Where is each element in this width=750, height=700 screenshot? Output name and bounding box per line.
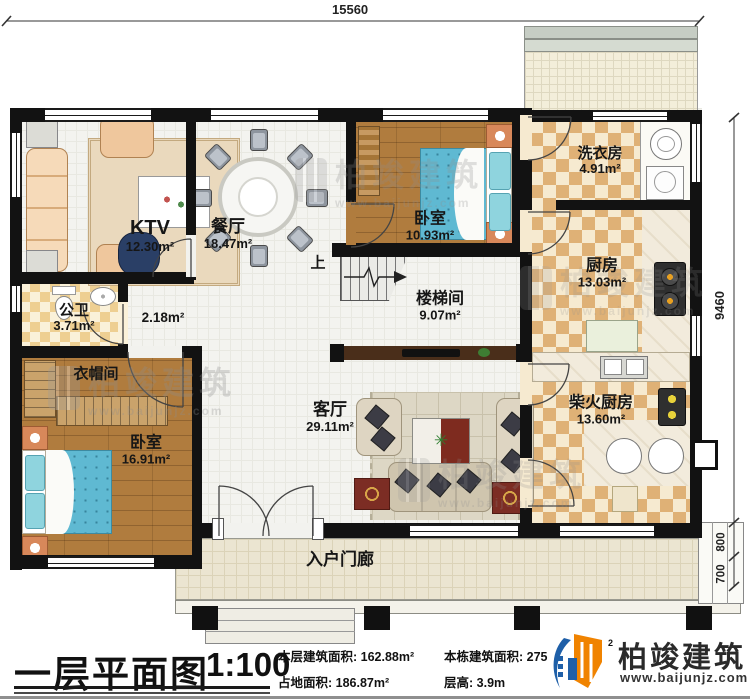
window xyxy=(45,108,151,122)
floor-mat xyxy=(354,478,390,510)
dining-table-top xyxy=(238,177,278,217)
floor-plan-sheet: ✳ xyxy=(0,0,750,700)
door-opening xyxy=(118,302,128,344)
dining-chair xyxy=(250,129,268,151)
room-label-bedroom-top: 卧室 10.93m² xyxy=(406,210,454,243)
title-block: 一层平面图 1:100 本层建筑面积: 162.88m² 占地面积: 186.8… xyxy=(0,628,750,700)
brand-logo-icon xyxy=(546,630,612,694)
firewood-stool xyxy=(612,486,638,512)
stairs-up-label: 上 xyxy=(310,254,325,271)
window xyxy=(10,133,22,197)
window xyxy=(10,286,22,312)
window xyxy=(593,110,667,122)
wall xyxy=(556,200,702,210)
kitchen-sink-basin xyxy=(626,359,644,375)
tv xyxy=(402,349,460,357)
door-opening xyxy=(520,362,532,405)
room-label-ktv: KTV 12.30m² xyxy=(126,217,174,255)
toilet-tank xyxy=(52,286,76,295)
firewood-pot xyxy=(648,438,684,474)
wall-stub xyxy=(330,344,344,362)
stat-total-area: 本栋建筑面积: 275 xyxy=(444,646,548,665)
dining-chair xyxy=(250,245,268,267)
wardrobe-side xyxy=(24,360,56,418)
door-opening xyxy=(216,523,316,538)
room-label-firewood-kitchen: 柴火厨房 13.60m² xyxy=(569,394,633,427)
door-opening xyxy=(128,346,182,358)
ktv-side-table xyxy=(26,118,58,148)
title-underline xyxy=(14,692,270,694)
plan-title: 一层平面图 xyxy=(14,644,209,698)
brand-site: www.baijunjz.com xyxy=(620,670,748,685)
bed-left-sheet xyxy=(46,450,74,534)
wardrobe xyxy=(56,396,168,426)
door-opening xyxy=(520,115,532,160)
nightstand xyxy=(486,124,514,148)
porch-pillar xyxy=(364,606,390,630)
porch-pillar xyxy=(192,606,218,630)
bed-top-pillow xyxy=(489,193,511,231)
window xyxy=(410,524,518,538)
dim-right-height: 9460 xyxy=(712,291,727,320)
room-label-hallway: 2.18m² xyxy=(142,310,185,326)
room-label-kitchen: 厨房 13.03m² xyxy=(578,257,626,290)
terrace-floor xyxy=(524,52,698,110)
door-opening xyxy=(346,202,356,245)
room-label-laundry: 洗衣房 4.91m² xyxy=(577,145,622,177)
dim-right-seg-700: 700 xyxy=(716,564,728,583)
kitchen-sink-basin xyxy=(604,359,622,375)
stove-burner xyxy=(661,268,679,286)
ktv-armchair xyxy=(100,116,154,158)
window xyxy=(560,524,654,538)
wall xyxy=(192,346,202,569)
wall-stub xyxy=(516,344,526,362)
bed-left-pillow xyxy=(25,455,45,491)
porch-pillar xyxy=(686,606,712,630)
title-underline xyxy=(14,686,270,689)
door-jamb xyxy=(212,518,224,540)
wall xyxy=(10,272,194,284)
room-label-bathroom: 公卫 3.71m² xyxy=(53,302,94,334)
stat-total-area-superscript: 2 xyxy=(608,638,613,648)
window xyxy=(48,556,154,569)
door-opening xyxy=(520,458,532,508)
stat-floor-height: 层高: 3.9m xyxy=(444,672,505,691)
dim-right-seg-800: 800 xyxy=(716,532,728,551)
window xyxy=(690,124,702,182)
room-label-cloakroom: 衣帽间 xyxy=(73,365,118,382)
stove-burner xyxy=(661,292,679,310)
terrace-eave-band xyxy=(524,26,698,39)
room-label-porch: 入户门廊 xyxy=(306,550,374,570)
door-jamb xyxy=(312,518,324,540)
entry-step-line xyxy=(205,620,355,621)
bed-top-pillow xyxy=(489,152,511,190)
wall xyxy=(332,243,532,257)
firewood-stove xyxy=(658,388,686,426)
porch-pillar xyxy=(514,606,540,630)
kitchen-island xyxy=(586,320,638,352)
sheet-bottom-rule xyxy=(0,696,750,699)
porch-floor xyxy=(175,538,741,600)
window xyxy=(383,108,488,122)
door-opening xyxy=(186,235,196,277)
terrace-eave-band xyxy=(524,39,698,52)
stat-floor-area: 本层建筑面积: 162.88m² xyxy=(278,646,414,665)
coffee-table: ✳ xyxy=(412,418,470,464)
flue-box xyxy=(692,440,718,470)
door-opening xyxy=(520,210,532,252)
room-label-stairwell: 楼梯间 9.07m² xyxy=(416,290,464,323)
window xyxy=(690,316,702,356)
washing-machine-door xyxy=(654,171,676,193)
firewood-pot xyxy=(606,438,642,474)
bed-top-sheet xyxy=(454,148,484,240)
room-label-living: 客厅 29.11m² xyxy=(306,400,354,434)
laundry-sink-basin xyxy=(657,136,675,152)
bedroom-top-closet xyxy=(358,126,380,196)
window xyxy=(211,108,318,122)
side-step-line xyxy=(712,522,713,604)
stat-land-area: 占地面积: 186.87m² xyxy=(278,672,389,691)
dining-chair xyxy=(306,189,328,207)
room-label-dining: 餐厅 18.47m² xyxy=(204,217,252,251)
dim-top-width: 15560 xyxy=(332,2,368,17)
bed-left-pillow xyxy=(25,493,45,529)
room-label-bedroom-left: 卧室 16.91m² xyxy=(122,434,170,467)
console-plant xyxy=(478,348,490,357)
nightstand xyxy=(22,426,48,450)
